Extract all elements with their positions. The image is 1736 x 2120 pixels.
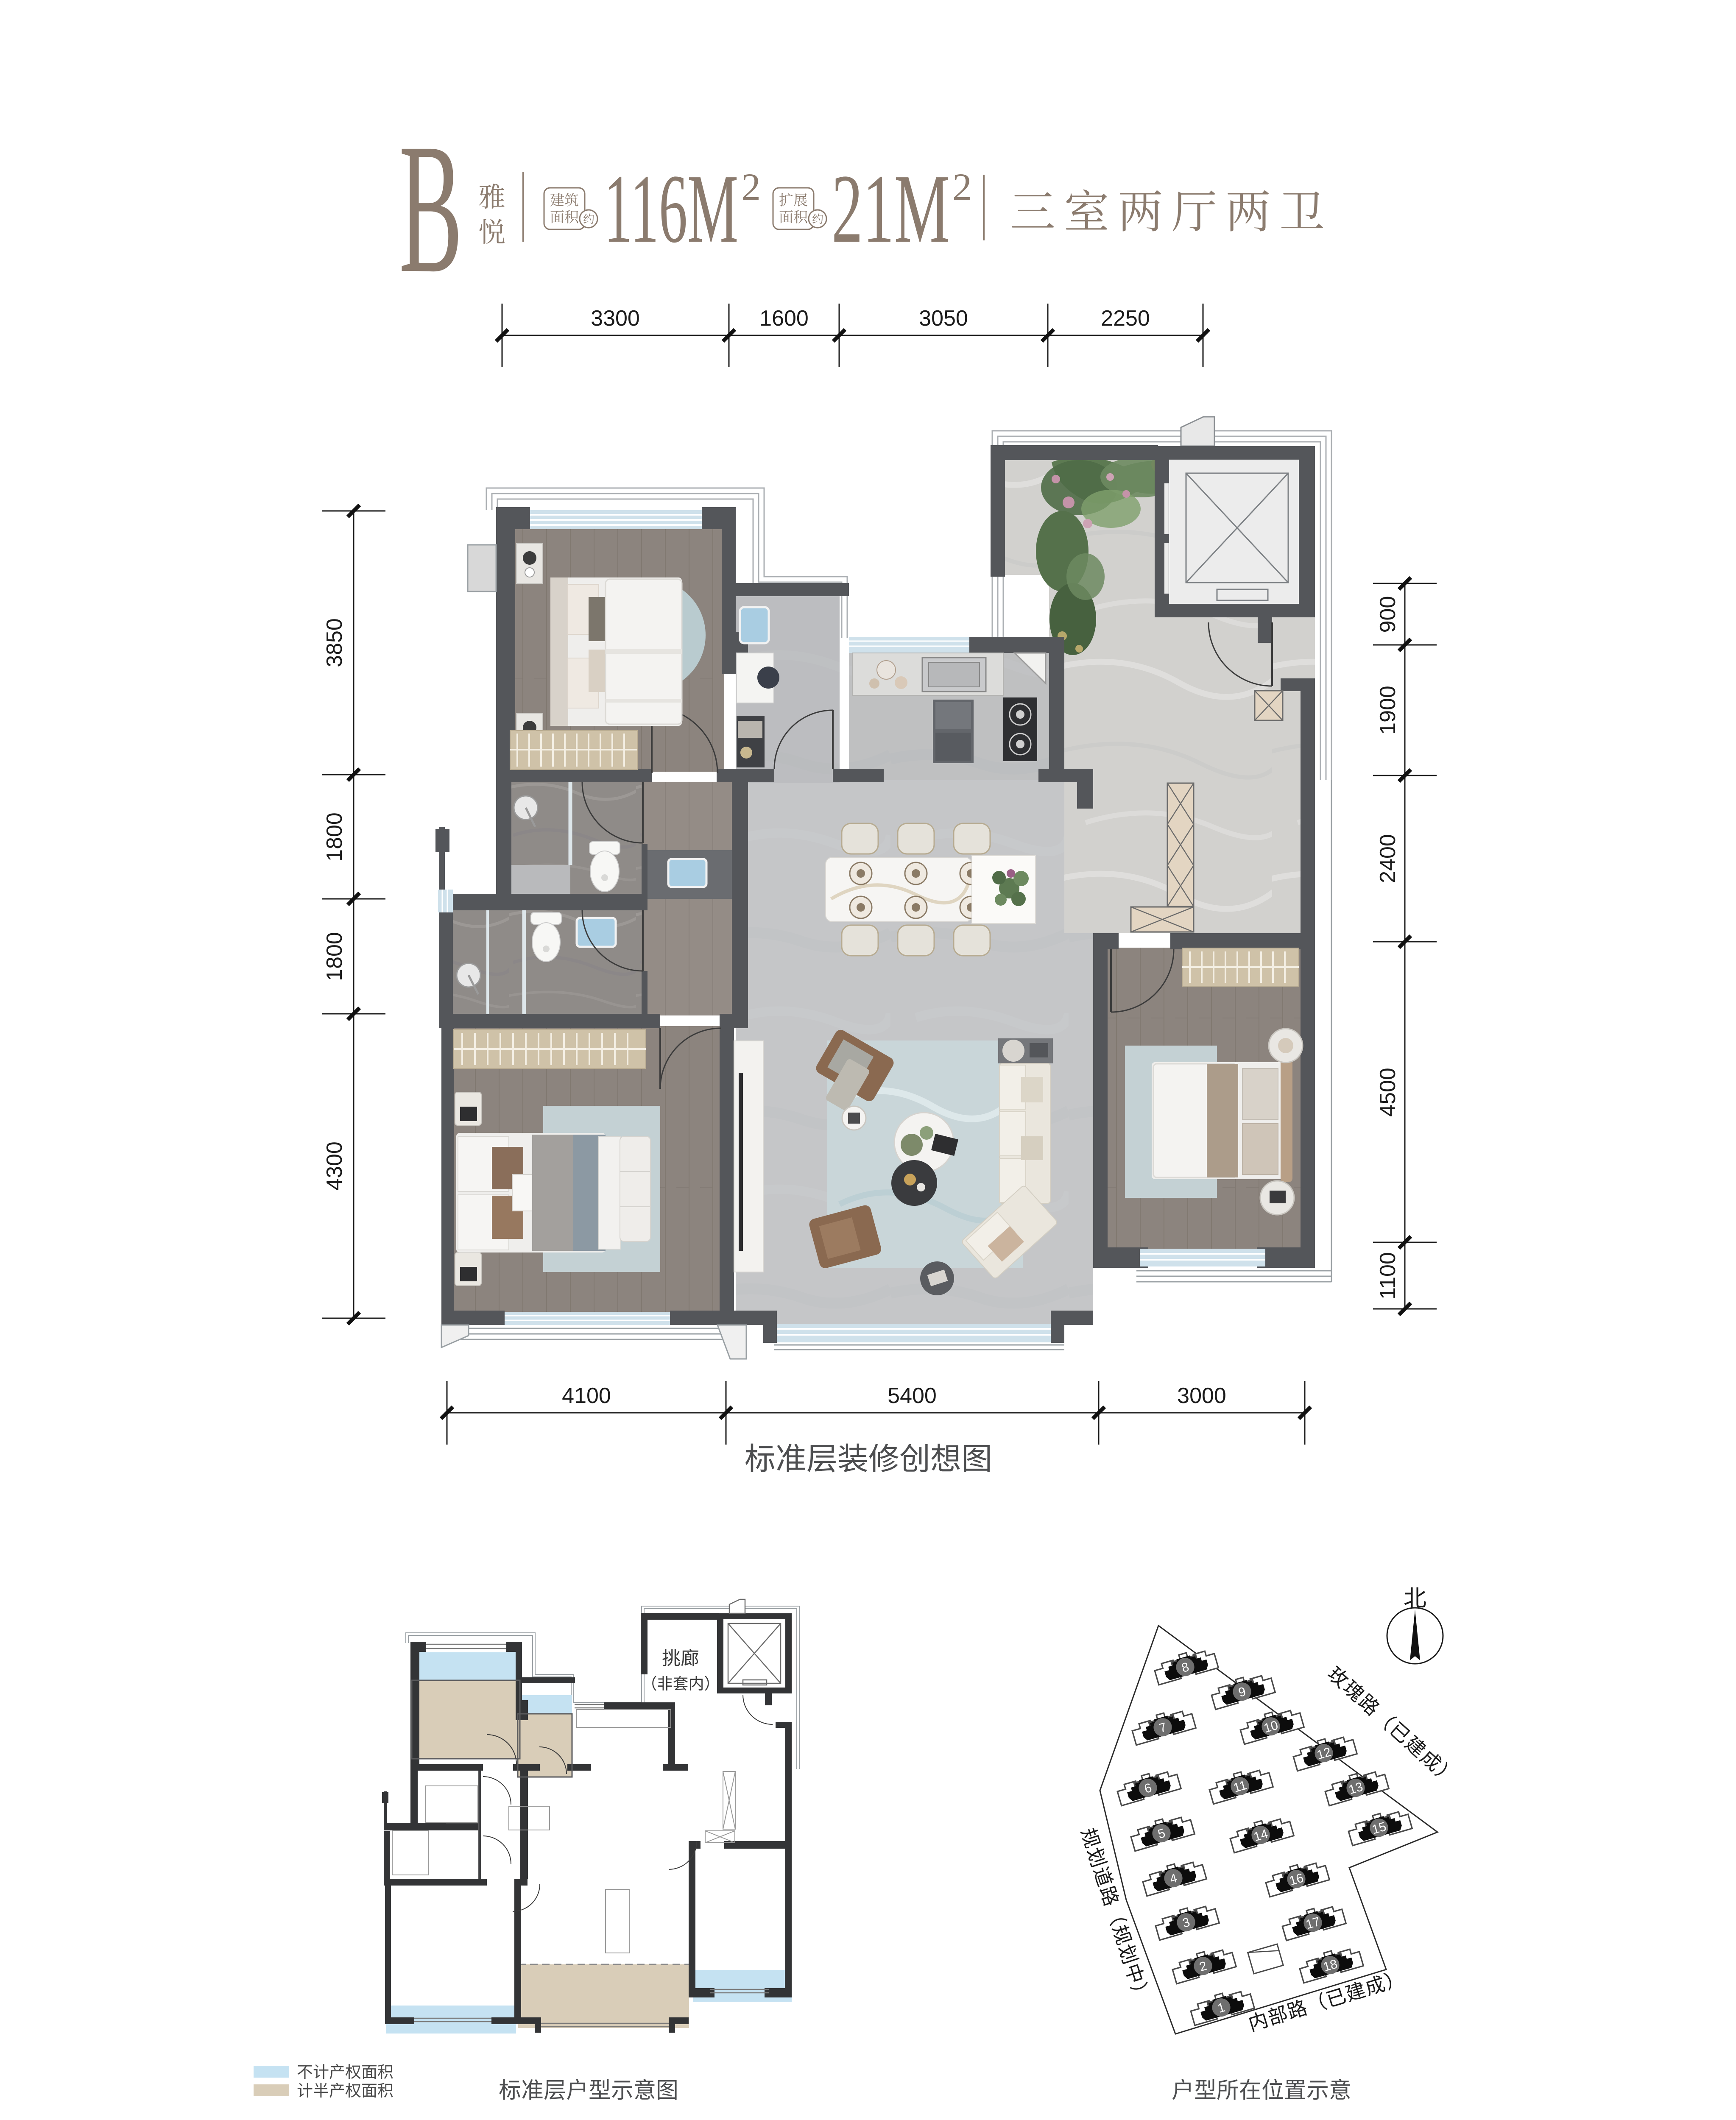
svg-text:4100: 4100	[562, 1384, 611, 1408]
svg-text:900: 900	[1376, 596, 1400, 633]
svg-text:5400: 5400	[888, 1384, 937, 1408]
svg-text:2: 2	[952, 165, 972, 209]
svg-text:2400: 2400	[1376, 834, 1400, 883]
svg-text:1800: 1800	[322, 812, 347, 862]
svg-text:1900: 1900	[1376, 686, 1400, 735]
svg-text:1100: 1100	[1376, 1252, 1400, 1300]
svg-text:3050: 3050	[919, 306, 968, 331]
svg-text:3850: 3850	[322, 618, 347, 667]
svg-text:21M: 21M	[832, 154, 950, 263]
svg-text:4300: 4300	[322, 1141, 347, 1191]
svg-text:1800: 1800	[322, 932, 347, 981]
svg-text:3000: 3000	[1177, 1384, 1226, 1408]
svg-text:2: 2	[741, 165, 761, 209]
svg-text:2250: 2250	[1101, 306, 1150, 331]
svg-text:4500: 4500	[1376, 1068, 1400, 1117]
svg-text:3300: 3300	[591, 306, 640, 331]
svg-text:1600: 1600	[759, 306, 809, 331]
svg-text:B: B	[399, 105, 463, 312]
svg-text:116M: 116M	[604, 154, 738, 263]
